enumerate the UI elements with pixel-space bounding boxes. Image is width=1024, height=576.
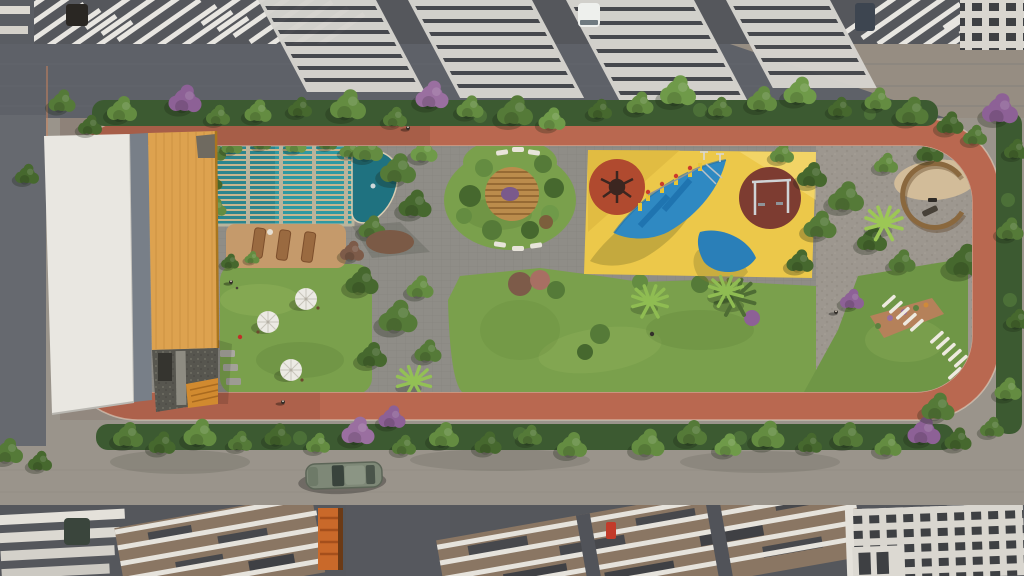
rooftop-tank-green (64, 518, 90, 545)
pergola-slats (215, 150, 352, 220)
roof-notch (196, 134, 216, 158)
red-lawn-toy (238, 335, 242, 339)
grid-roof-bottom-right (845, 503, 1024, 576)
vehicle-windshield (580, 20, 598, 25)
pavilion-canopy (501, 187, 519, 201)
roof-gap (346, 505, 450, 576)
scene-canvas (0, 0, 1024, 576)
children-playground (584, 150, 816, 285)
central-lawn (448, 268, 816, 392)
grid-roof-top-right (960, 0, 1024, 50)
clubhouse-white-roof (44, 134, 134, 414)
swing-circle (739, 167, 801, 229)
amenity-deck (0, 66, 1024, 474)
clubhouse (44, 131, 232, 414)
aerial-render (0, 0, 1024, 576)
rooftop-unit (66, 4, 88, 26)
red-hydrant (606, 522, 616, 539)
dog (236, 287, 239, 290)
water-tank (855, 3, 875, 31)
pool-float (371, 184, 376, 189)
clubhouse-wood-roof (148, 131, 218, 350)
doorway (158, 353, 172, 381)
car-windshield (332, 465, 345, 486)
flowering-bush (744, 310, 760, 326)
car-roof (345, 465, 366, 485)
sun-loungers (251, 227, 316, 262)
car-rear-window (366, 465, 376, 484)
street-left (0, 115, 46, 453)
